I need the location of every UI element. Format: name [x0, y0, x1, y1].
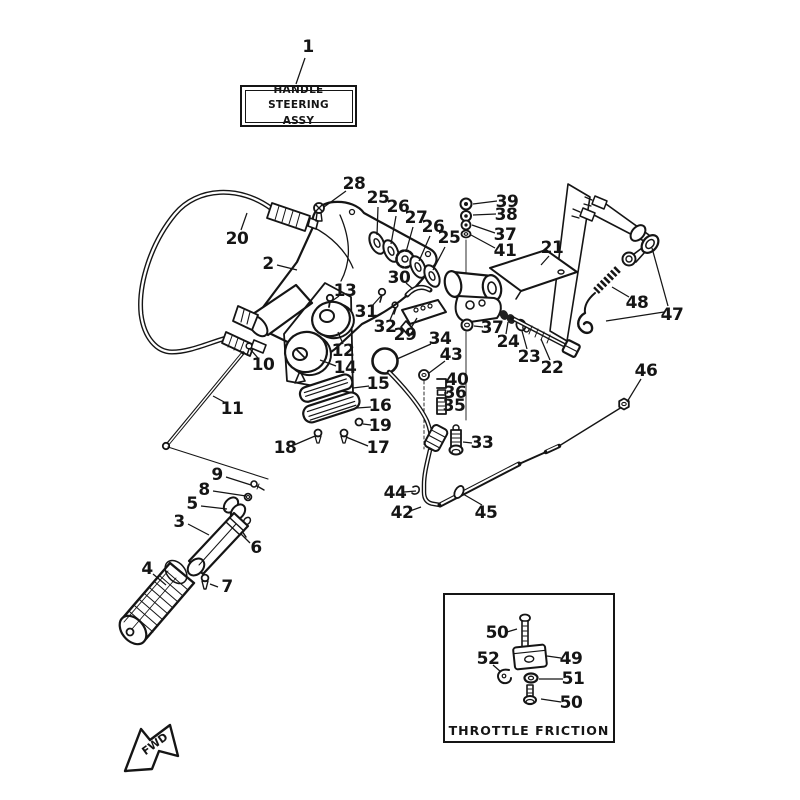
- callout-49: 49: [560, 649, 583, 669]
- callout-14: 14: [334, 358, 357, 378]
- leader-9: [226, 477, 251, 485]
- callout-4: 4: [141, 559, 152, 579]
- clip-10: [246, 343, 252, 349]
- callout-15: 15: [367, 374, 390, 394]
- screw-9: [251, 481, 257, 487]
- callout-16: 16: [369, 396, 392, 416]
- fwd-arrow: FWD: [125, 725, 178, 771]
- title-box: HANDLE STEERING ASSY: [240, 85, 357, 127]
- leader-20: [241, 213, 247, 230]
- callout-43: 43: [440, 345, 463, 365]
- callout-33: 33: [471, 433, 494, 453]
- callout-2: 2: [262, 254, 273, 274]
- callout-47: 47: [661, 305, 684, 325]
- inset-box-title: THROTTLE FRICTION: [443, 723, 615, 738]
- callout-13: 13: [334, 281, 357, 301]
- nut-19: [356, 419, 363, 426]
- callout-25-2: 25: [438, 228, 461, 248]
- clip-44: [412, 486, 419, 494]
- bolt-33: [450, 425, 463, 455]
- callout-3: 3: [173, 512, 184, 532]
- callout-42: 42: [391, 503, 414, 523]
- leader-47: [606, 312, 664, 321]
- inset-box: [443, 593, 615, 743]
- leader-46: [627, 379, 641, 402]
- callout-30: 30: [388, 268, 411, 288]
- callout-52: 52: [477, 649, 500, 669]
- friction-pads-art: [295, 372, 362, 443]
- callout-8: 8: [198, 480, 209, 500]
- callout-46: 46: [635, 361, 658, 381]
- nut-46: [619, 399, 629, 410]
- callout-41: 41: [494, 241, 517, 261]
- callout-48: 48: [626, 293, 649, 313]
- diagram-art: FWD: [0, 0, 800, 800]
- leader-18: [294, 436, 315, 445]
- callout-23: 23: [518, 347, 541, 367]
- callout-51: 51: [562, 669, 585, 689]
- callout-22: 22: [541, 358, 564, 378]
- callout-9: 9: [211, 465, 222, 485]
- callout-17: 17: [367, 438, 390, 458]
- hook: [578, 313, 592, 333]
- washer-8: [245, 494, 252, 501]
- callout-20: 20: [226, 229, 249, 249]
- fastener-stack-art: [461, 199, 472, 238]
- leader-41: [471, 235, 495, 248]
- callout-50-2: 50: [560, 693, 583, 713]
- callout-10: 10: [252, 355, 275, 375]
- leader-34: [397, 344, 431, 359]
- parts-diagram: FWD HANDLE STEERING ASSY THROTTLE FRICTI…: [0, 0, 800, 800]
- leader-8: [213, 491, 246, 496]
- leader-39: [473, 201, 497, 204]
- nut-43: [419, 370, 429, 380]
- title-line2: ASSY: [283, 114, 315, 129]
- grip-4: [114, 556, 194, 649]
- leader-38: [473, 214, 496, 215]
- callout-45: 45: [475, 503, 498, 523]
- callout-35: 35: [443, 396, 466, 416]
- callout-1: 1: [302, 37, 313, 57]
- title-line1: HANDLE STEERING: [246, 83, 352, 113]
- callout-18: 18: [274, 438, 297, 458]
- callout-50: 50: [486, 623, 509, 643]
- leader-7: [210, 584, 218, 587]
- callout-24: 24: [497, 332, 520, 352]
- leader-3: [188, 524, 209, 535]
- callout-19: 19: [369, 416, 392, 436]
- callout-11: 11: [221, 399, 244, 419]
- callout-5: 5: [186, 494, 197, 514]
- callout-7: 7: [221, 577, 232, 597]
- callout-29: 29: [394, 325, 417, 345]
- leader-47: [652, 248, 668, 306]
- callout-44: 44: [384, 483, 407, 503]
- leader-17: [346, 437, 368, 446]
- leader-1: [296, 58, 305, 84]
- leader-22: [541, 339, 550, 360]
- callout-38: 38: [495, 205, 518, 225]
- callout-21: 21: [541, 238, 564, 258]
- leader-37: [472, 225, 495, 233]
- callout-28: 28: [343, 174, 366, 194]
- callout-6: 6: [250, 538, 261, 558]
- knob-34: [373, 349, 398, 374]
